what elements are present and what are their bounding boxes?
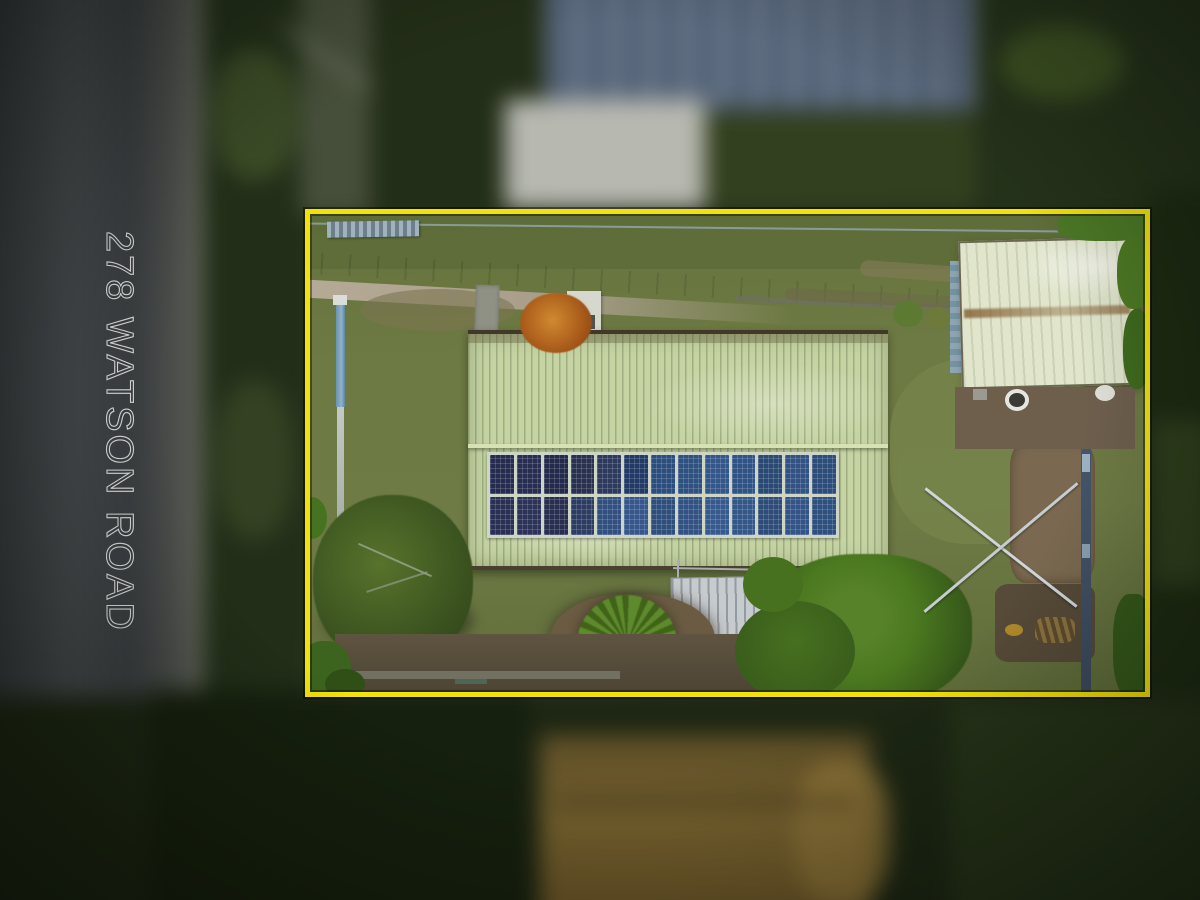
tree-clump-blur bbox=[1000, 25, 1125, 100]
trees-bottom-right-blur bbox=[950, 700, 1200, 900]
property-boundary-outline bbox=[305, 209, 1150, 697]
address-label: 278 WATSON ROAD bbox=[84, 231, 140, 709]
grass-right-band-blur bbox=[1152, 420, 1200, 585]
driveway-blur bbox=[505, 100, 705, 208]
lawn-top-blur bbox=[705, 112, 975, 210]
neighbor-roof-ridge-blur bbox=[555, 800, 855, 806]
aerial-photo: 278 WATSON ROAD bbox=[0, 0, 1200, 900]
neighbor-brown-roof-highlight-blur bbox=[795, 760, 890, 900]
verge-blur bbox=[300, 0, 370, 215]
nature-strip-patch-blur bbox=[215, 380, 295, 540]
nature-strip-patch-blur bbox=[212, 50, 297, 180]
trees-bottom-left-blur bbox=[150, 690, 530, 900]
